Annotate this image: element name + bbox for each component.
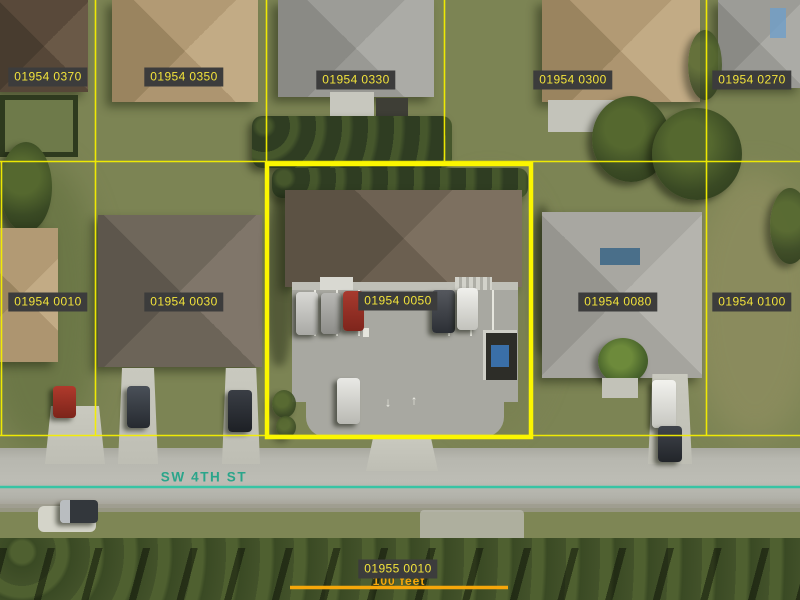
parcel-label[interactable]: 01955 0010 (358, 560, 437, 579)
parcel-label[interactable]: 01954 0370 (8, 68, 87, 87)
parcel-label[interactable]: 01954 0350 (144, 68, 223, 87)
parcel-label[interactable]: 01954 0270 (712, 71, 791, 90)
parcel-label[interactable]: 01954 0330 (316, 71, 395, 90)
parcel-label[interactable]: 01954 0050 (358, 292, 437, 311)
parcel-label[interactable]: 01954 0300 (533, 71, 612, 90)
parcel-labels-layer: 01954 037001954 035001954 033001954 0300… (0, 0, 800, 600)
parcel-label[interactable]: 01954 0100 (712, 293, 791, 312)
parcel-label[interactable]: 01954 0030 (144, 293, 223, 312)
parcel-label[interactable]: 01954 0010 (8, 293, 87, 312)
parcel-label[interactable]: 01954 0080 (578, 293, 657, 312)
aerial-map[interactable]: ↓ ↑ 100 feet SW 4TH ST 01954 037001954 0… (0, 0, 800, 600)
